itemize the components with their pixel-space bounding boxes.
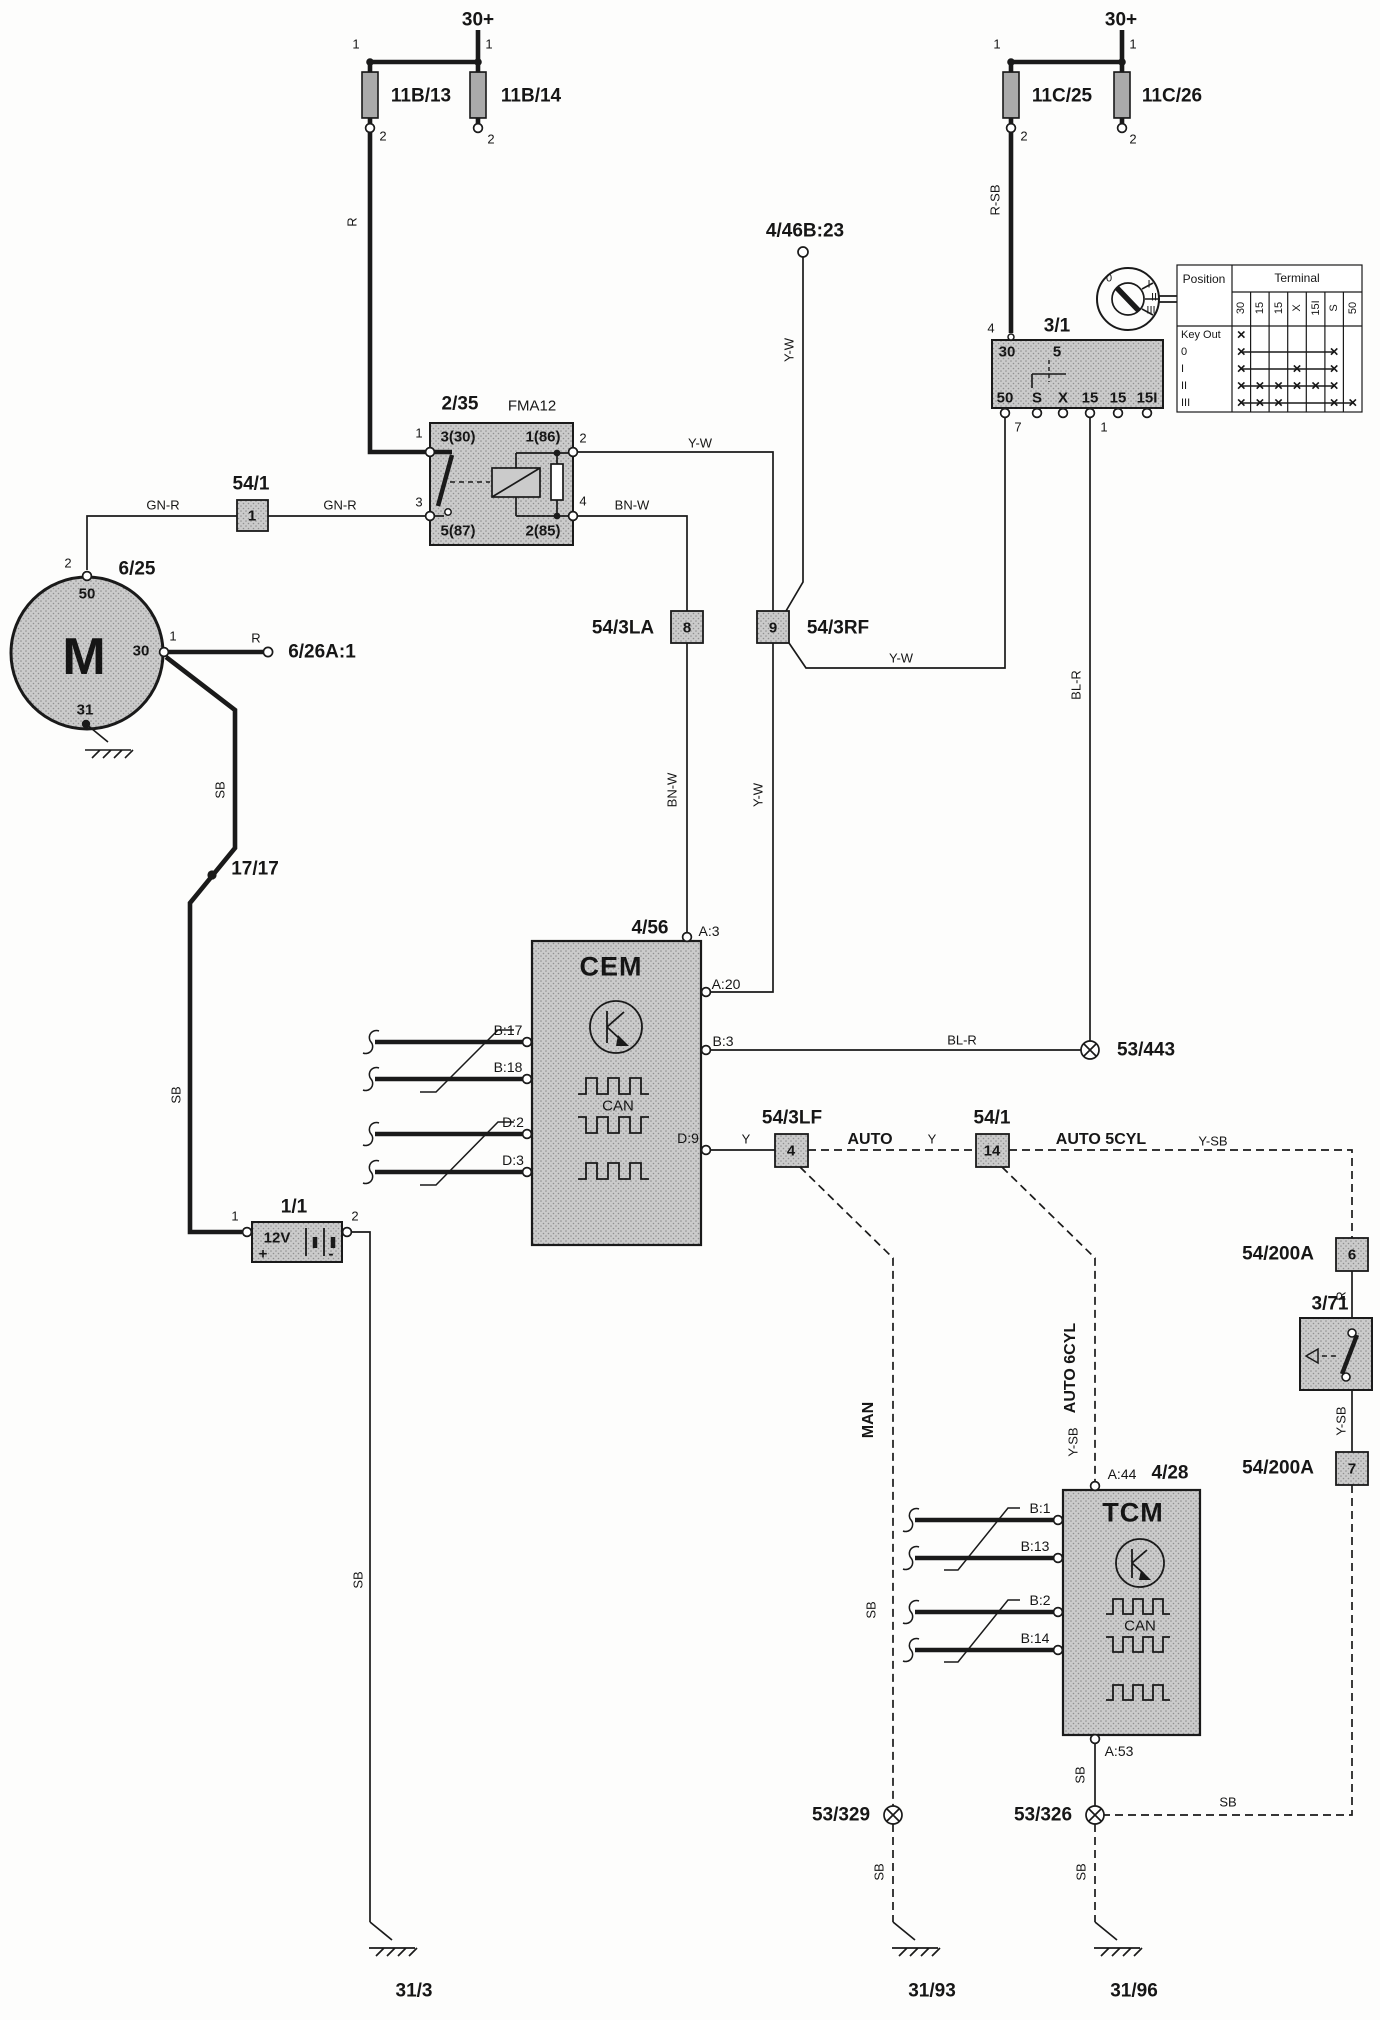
table-col-15: 15 — [1273, 302, 1285, 314]
relay-id: 2/35 — [442, 395, 479, 414]
ground-31-93: 31/93 — [908, 1982, 956, 2001]
key-dial-pos-I: I — [1147, 280, 1150, 291]
connector-54-3lf: 54/3LF — [762, 1109, 822, 1128]
table-mark: × — [1293, 378, 1302, 395]
wire-label-sb: SB — [352, 1571, 365, 1588]
ignition-pin1: 1 — [1100, 421, 1107, 434]
connector-boxes — [237, 500, 1368, 1485]
wire-label-bnw: BN-W — [666, 773, 679, 808]
connector-4-46b-23: 4/46B:23 — [766, 222, 844, 241]
tcm-pin-b2: B:2 — [1029, 1593, 1050, 1607]
table-col-30: 30 — [1235, 302, 1247, 314]
key-dial-pos-0: 0 — [1106, 274, 1112, 285]
fuse-pin: 1 — [993, 38, 1000, 51]
fuse-11b13-label: 11B/13 — [391, 87, 451, 106]
relay-terminal-285: 2(85) — [525, 524, 560, 539]
tcm-can-label: CAN — [1124, 1619, 1156, 1634]
wire-label-sb: SB — [873, 1863, 886, 1880]
connector-54-3la-pin: 8 — [683, 621, 691, 636]
fuse-11c25-label: 11C/25 — [1032, 87, 1092, 106]
table-row-II: II — [1181, 380, 1187, 392]
connector-54-200a: 54/200A — [1242, 1245, 1314, 1264]
battery-id: 1/1 — [281, 1198, 307, 1217]
variant-auto-6cyl: AUTO 6CYL — [1063, 1323, 1079, 1413]
cem-pin-d3: D:3 — [502, 1153, 524, 1167]
wire-label-y: Y — [928, 1133, 937, 1146]
connector-54-1b: 54/1 — [974, 1109, 1011, 1128]
ignition-terminal-15: 15 — [1110, 391, 1127, 406]
table-mark: × — [1274, 378, 1283, 395]
table-mark: × — [1311, 378, 1320, 395]
table-mark: × — [1237, 395, 1246, 412]
tcm-id: 4/28 — [1152, 1464, 1189, 1483]
fuse-pin: 1 — [352, 38, 359, 51]
table-mark: × — [1330, 395, 1339, 412]
wire-label-rsb: R-SB — [989, 184, 1002, 215]
wire-label-blr: BL-R — [1070, 670, 1083, 700]
fuse-11c26-label: 11C/26 — [1142, 87, 1202, 106]
pedal-switch-3-71 — [1300, 1318, 1372, 1390]
ignition-terminal-50: 50 — [997, 391, 1014, 406]
table-mark: × — [1330, 361, 1339, 378]
table-mark: × — [1274, 395, 1283, 412]
tcm-pin-a53: A:53 — [1105, 1744, 1134, 1758]
table-col-S: S — [1328, 304, 1340, 311]
splice-53-326: 53/326 — [1014, 1806, 1072, 1825]
fuse-pin: 2 — [487, 133, 494, 146]
wire-label-r: R — [251, 632, 260, 645]
table-mark: × — [1237, 344, 1246, 361]
relay-terminal-186: 1(86) — [525, 430, 560, 445]
relay-pin2: 2 — [579, 432, 586, 445]
motor-id: 6/25 — [119, 560, 156, 579]
connector-54-200a-pin7: 7 — [1348, 1462, 1356, 1477]
table-row-Key Out: Key Out — [1181, 329, 1221, 341]
power-wires — [166, 30, 1122, 1650]
table-row-0: 0 — [1181, 346, 1187, 358]
table-mark: × — [1348, 395, 1357, 412]
ground-symbols — [369, 1922, 1142, 1956]
ignition-pin7: 7 — [1014, 421, 1021, 434]
connector-6-26a-1: 6/26A:1 — [288, 643, 356, 662]
tcm-pin-b13: B:13 — [1021, 1539, 1050, 1553]
table-mark: × — [1237, 378, 1246, 395]
wire-label-yw: Y-W — [688, 437, 712, 450]
ignition-terminal-X: X — [1058, 391, 1068, 406]
splice-17-17: 17/17 — [231, 860, 279, 879]
splice-53-329: 53/329 — [812, 1806, 870, 1825]
connector-54-3lf-pin: 4 — [787, 1144, 795, 1159]
fuse-pin: 1 — [1129, 38, 1136, 51]
connector-54-3rf: 54/3RF — [807, 619, 869, 638]
ignition-pin4: 4 — [987, 322, 994, 335]
ignition-terminal-15I: 15I — [1137, 391, 1158, 406]
wire-label-blr: BL-R — [947, 1034, 977, 1047]
feed-30-left: 30+ — [462, 11, 494, 30]
connector-54-1a-pin: 1 — [248, 509, 256, 524]
cem-can-label: CAN — [602, 1099, 634, 1114]
cem-pin-a3: A:3 — [698, 924, 719, 938]
battery-pin2: 2 — [351, 1210, 358, 1223]
battery-voltage: 12V — [264, 1231, 291, 1246]
tcm-pin-b14: B:14 — [1021, 1631, 1050, 1645]
connector-54-3rf-pin: 9 — [769, 621, 777, 636]
tcm-name: TCM — [1102, 1500, 1163, 1527]
table-col-15: 15 — [1254, 302, 1266, 314]
wire-label-ysb: Y-SB — [1198, 1135, 1227, 1148]
wiring-svg — [0, 0, 1380, 2020]
cem-pin-a20: A:20 — [712, 977, 741, 991]
relay-pin1: 1 — [415, 427, 422, 440]
splice-53-443: 53/443 — [1117, 1041, 1175, 1060]
feed-30-right: 30+ — [1105, 11, 1137, 30]
wire-label-sb: SB — [214, 781, 227, 798]
fuse-pin: 2 — [1020, 130, 1027, 143]
wire-label-ysb: Y-SB — [1335, 1406, 1348, 1435]
table-mark: × — [1293, 361, 1302, 378]
cem-pin-b17: B:17 — [494, 1023, 523, 1037]
wire-label-y: Y — [742, 1133, 751, 1146]
cem-module — [532, 941, 701, 1245]
ignition-id: 3/1 — [1044, 317, 1070, 336]
motor-pin1: 1 — [169, 630, 176, 643]
key-dial-pos-II: II — [1151, 293, 1157, 304]
wire-label-yw: Y-W — [752, 783, 765, 807]
wire-label-gnr: GN-R — [323, 499, 356, 512]
wire-label-yw: Y-W — [889, 652, 913, 665]
ignition-terminal-S: S — [1032, 391, 1042, 406]
connector-54-3la: 54/3LA — [592, 619, 654, 638]
motor-terminal-50: 50 — [79, 587, 96, 602]
battery-plus: + — [259, 1247, 268, 1262]
table-mark: × — [1237, 327, 1246, 344]
junction-dots — [366, 58, 1126, 66]
relay-terminal-330: 3(30) — [440, 430, 475, 445]
cem-pin-b3: B:3 — [712, 1034, 733, 1048]
connector-54-200a-pin6: 6 — [1348, 1248, 1356, 1263]
table-mark: × — [1256, 395, 1265, 412]
motor-pin2: 2 — [64, 557, 71, 570]
variant-auto-5cyl: AUTO 5CYL — [1056, 1132, 1146, 1148]
table-mark: × — [1237, 361, 1246, 378]
battery-pin1: 1 — [231, 1210, 238, 1223]
fuse-pin: 1 — [485, 38, 492, 51]
table-row-I: I — [1181, 363, 1184, 375]
cem-pin-d2: D:2 — [502, 1115, 524, 1129]
wire-label-yw: Y-W — [783, 338, 796, 362]
wire-label-sb: SB — [865, 1601, 878, 1618]
wire-label-sb: SB — [1219, 1796, 1236, 1809]
variant-auto: AUTO — [847, 1132, 892, 1148]
cem-pin-b18: B:18 — [494, 1060, 523, 1074]
variant-man: MAN — [861, 1402, 877, 1438]
fuse-pin: 2 — [1129, 133, 1136, 146]
fuse-11b14-label: 11B/14 — [501, 87, 561, 106]
table-mark: × — [1256, 378, 1265, 395]
table-row-III: III — [1181, 397, 1190, 409]
connector-54-200a: 54/200A — [1242, 1459, 1314, 1478]
table-header-position: Position — [1183, 273, 1226, 285]
ignition-terminal-5: 5 — [1053, 345, 1061, 360]
ground-31-96: 31/96 — [1110, 1982, 1158, 2001]
relay-pin3: 3 — [415, 496, 422, 509]
motor-symbol: M — [62, 631, 105, 683]
cem-name: CEM — [580, 954, 643, 981]
ignition-terminal-15: 15 — [1082, 391, 1099, 406]
connector-54-1b-pin: 14 — [984, 1144, 1001, 1159]
relay-terminal-587: 5(87) — [440, 524, 475, 539]
tcm-harness-symbols — [903, 1508, 1020, 1662]
table-col-50: 50 — [1347, 302, 1359, 314]
fuse-elements — [362, 72, 1130, 118]
table-header-terminal: Terminal — [1274, 272, 1319, 284]
wire-label-bnw: BN-W — [615, 499, 650, 512]
motor-terminal-30: 30 — [133, 644, 150, 659]
battery-minus: - — [329, 1247, 334, 1262]
ground-31-3: 31/3 — [396, 1982, 433, 2001]
ignition-terminal-30: 30 — [999, 345, 1016, 360]
wire-label-gnr: GN-R — [146, 499, 179, 512]
table-mark: × — [1330, 344, 1339, 361]
motor-terminal-31: 31 — [77, 703, 94, 718]
key-dial-pos-III: III — [1146, 306, 1155, 317]
pedal-switch-id: 3/71 — [1312, 1295, 1349, 1314]
wire-label-r: R — [346, 217, 359, 226]
tcm-pin-b1: B:1 — [1029, 1501, 1050, 1515]
table-mark: × — [1330, 378, 1339, 395]
cem-pin-d9: D:9 — [677, 1131, 699, 1145]
table-col-15I: 15I — [1310, 300, 1322, 315]
wire-label-sb: SB — [1075, 1863, 1088, 1880]
connector-54-1a: 54/1 — [233, 475, 270, 494]
wire-label-sb: SB — [170, 1086, 183, 1103]
relay-pin4: 4 — [579, 495, 586, 508]
relay-type: FMA12 — [508, 399, 556, 414]
fuse-pin: 2 — [379, 130, 386, 143]
table-col-X: X — [1291, 304, 1303, 311]
wiring-diagram: 30+ 1 1 11B/13 11B/14 2 2 R 30+ 1 1 11C/… — [0, 0, 1380, 2020]
wire-label-sb: SB — [1074, 1766, 1087, 1783]
cem-id: 4/56 — [632, 919, 669, 938]
wire-label-ysb: Y-SB — [1067, 1427, 1080, 1456]
cem-harness-symbols — [363, 1030, 514, 1185]
tcm-pin-a44: A:44 — [1108, 1467, 1137, 1481]
